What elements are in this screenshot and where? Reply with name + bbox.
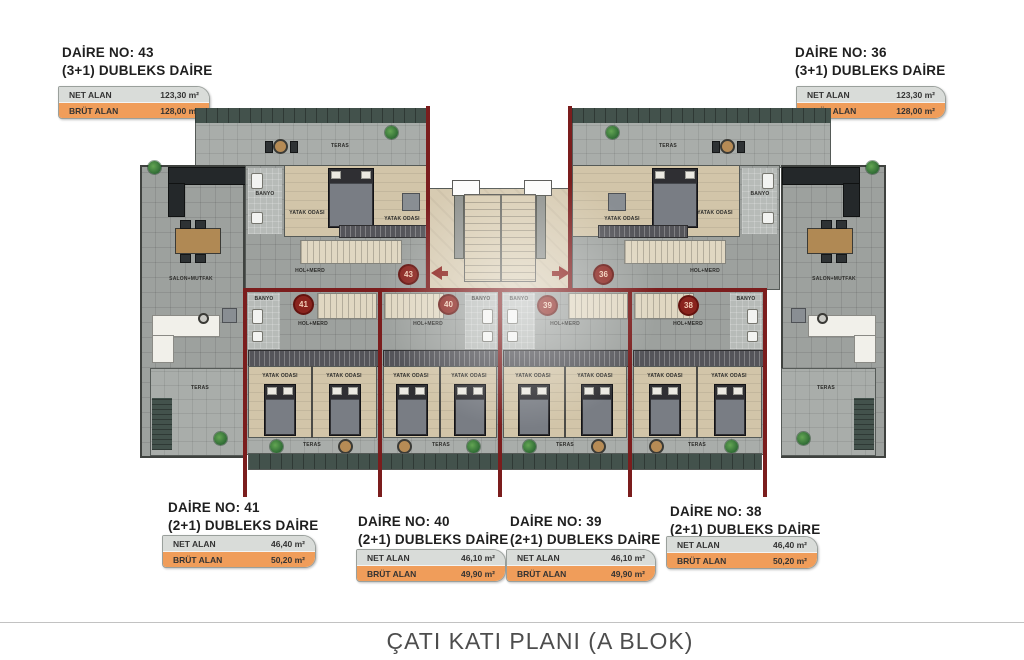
bedroom-divider-wall bbox=[311, 366, 313, 438]
sheet-title: ÇATI KATI PLANI (A BLOK) bbox=[0, 628, 1024, 655]
room-label-bedroom: YATAK ODASI bbox=[380, 217, 424, 223]
room-label-bedroom: YATAK ODASI bbox=[511, 374, 555, 380]
floor-plan-sheet: DAİRE NO: 43 (3+1) DUBLEKS DAİRE NET ALA… bbox=[0, 0, 1024, 660]
terrace-table-icon bbox=[591, 439, 606, 454]
unit-marker-41: 41 bbox=[293, 294, 314, 315]
deck-strip bbox=[854, 398, 874, 450]
axis-line-left bbox=[426, 106, 430, 290]
room-label-living: SALON+MUTFAK bbox=[798, 277, 870, 283]
stair-wall bbox=[536, 195, 546, 259]
net-area-value: 46,10 m² bbox=[611, 553, 645, 563]
net-area-label: NET ALAN bbox=[517, 553, 560, 563]
brut-area-label: BRÜT ALAN bbox=[517, 569, 566, 579]
bedrooms-40: YATAK ODASI YATAK ODASI bbox=[383, 366, 497, 438]
terrace-table-icon bbox=[273, 139, 288, 154]
wardrobe-icon bbox=[633, 350, 764, 367]
sink-icon bbox=[507, 331, 518, 342]
net-area-label: NET ALAN bbox=[807, 90, 850, 100]
plant-icon bbox=[467, 440, 480, 453]
duplex-stairs-39 bbox=[568, 293, 628, 319]
deck-strip bbox=[572, 108, 831, 123]
bathroom-41: BANYO bbox=[248, 293, 280, 349]
armchair-icon bbox=[608, 193, 626, 211]
brut-area-row: BRÜT ALAN 128,00 m² bbox=[59, 103, 209, 118]
chair-icon bbox=[737, 141, 745, 153]
terrace-top-right: TERAS bbox=[572, 108, 831, 168]
bed-icon bbox=[328, 168, 374, 228]
plant-icon bbox=[866, 161, 879, 174]
room-label-bedroom: YATAK ODASI bbox=[694, 211, 736, 217]
unit-marker-41-number: 41 bbox=[299, 300, 308, 309]
deck-strip bbox=[195, 108, 428, 123]
armchair-icon bbox=[791, 308, 806, 323]
bed-icon bbox=[652, 168, 698, 228]
sink-icon bbox=[251, 212, 263, 224]
room-label-bedroom: YATAK ODASI bbox=[286, 211, 328, 217]
room-label-bathroom: BANYO bbox=[503, 297, 535, 303]
room-label-terrace: TERAS bbox=[320, 144, 360, 150]
toilet-icon bbox=[251, 173, 263, 189]
room-label-living: SALON+MUTFAK bbox=[155, 277, 227, 283]
terrace-table-icon bbox=[338, 439, 353, 454]
net-area-row: NET ALAN 46,40 m² bbox=[163, 536, 315, 552]
dining-table-icon bbox=[807, 228, 853, 254]
room-label-terrace: TERAS bbox=[545, 443, 585, 449]
unit-41-subtitle: (2+1) DUBLEKS DAİRE bbox=[168, 517, 318, 535]
unit-40-subtitle: (2+1) DUBLEKS DAİRE bbox=[358, 531, 508, 549]
room-label-bathroom: BANYO bbox=[744, 192, 776, 198]
toilet-icon bbox=[507, 309, 518, 324]
duplex-stairs-40 bbox=[384, 293, 444, 319]
brut-area-label: BRÜT ALAN bbox=[677, 556, 726, 566]
room-label-hall: HOL+MERD bbox=[285, 269, 335, 275]
unit-43-title: DAİRE NO: 43 bbox=[62, 44, 212, 62]
bed-icon bbox=[396, 384, 428, 436]
unit-41-title: DAİRE NO: 41 bbox=[168, 499, 318, 517]
brut-area-label: BRÜT ALAN bbox=[367, 569, 416, 579]
unit-40-heading: DAİRE NO: 40 (2+1) DUBLEKS DAİRE bbox=[358, 513, 508, 548]
room-label-bedroom: YATAK ODASI bbox=[600, 217, 644, 223]
unit-36-plan: YATAK ODASI YATAK ODASI BANYO HOL+MERD 3… bbox=[572, 165, 780, 290]
unit-36-heading: DAİRE NO: 36 (3+1) DUBLEKS DAİRE bbox=[795, 44, 945, 79]
stair-core bbox=[428, 188, 572, 290]
bedroom-divider-wall bbox=[564, 366, 566, 438]
wardrobe-icon bbox=[598, 225, 688, 238]
unit-36-title: DAİRE NO: 36 bbox=[795, 44, 945, 62]
net-area-row: NET ALAN 46,40 m² bbox=[667, 537, 817, 553]
chair-icon bbox=[836, 254, 847, 263]
unit-38-plan: 38 BANYO HOL+MERD YATAK ODASI YATAK ODAS… bbox=[630, 290, 765, 455]
room-label-bedroom: YATAK ODASI bbox=[447, 374, 491, 380]
stair-rail bbox=[500, 195, 502, 281]
bedroom-divider-wall bbox=[696, 366, 698, 438]
axis-line-right bbox=[568, 106, 572, 290]
room-label-bathroom: BANYO bbox=[730, 297, 762, 303]
net-area-label: NET ALAN bbox=[173, 539, 216, 549]
brut-area-value: 50,20 m² bbox=[773, 556, 807, 566]
brut-area-label: BRÜT ALAN bbox=[173, 555, 222, 565]
unit-39-area-table: NET ALAN 46,10 m² BRÜT ALAN 49,90 m² bbox=[506, 549, 656, 582]
unit-divider-v5 bbox=[763, 288, 767, 497]
unit-38-heading: DAİRE NO: 38 (2+1) DUBLEKS DAİRE bbox=[670, 503, 820, 538]
bathroom-36: BANYO bbox=[742, 168, 777, 234]
bed-icon bbox=[518, 384, 550, 436]
staircase-icon bbox=[464, 194, 536, 282]
room-label-bedroom: YATAK ODASI bbox=[573, 374, 617, 380]
sofa-icon bbox=[152, 315, 220, 337]
toilet-icon bbox=[252, 309, 263, 324]
unit-38-title: DAİRE NO: 38 bbox=[670, 503, 820, 521]
unit-36-subtitle: (3+1) DUBLEKS DAİRE bbox=[795, 62, 945, 80]
unit-40-title: DAİRE NO: 40 bbox=[358, 513, 508, 531]
stair-wall bbox=[454, 195, 464, 259]
net-area-label: NET ALAN bbox=[367, 553, 410, 563]
unit-divider-v1 bbox=[243, 288, 247, 497]
unit-marker-36-number: 36 bbox=[599, 270, 608, 279]
room-label-hall: HOL+MERD bbox=[283, 322, 343, 328]
brut-area-value: 49,90 m² bbox=[461, 569, 495, 579]
brut-area-value: 49,90 m² bbox=[611, 569, 645, 579]
unit-39-plan: BANYO 39 HOL+MERD YATAK ODASI YATAK ODAS… bbox=[500, 290, 630, 455]
room-label-bathroom: BANYO bbox=[248, 297, 280, 303]
wing-right-terrace: TERAS bbox=[781, 368, 876, 456]
sink-icon bbox=[482, 331, 493, 342]
unit-40-plan: 40 BANYO HOL+MERD YATAK ODASI YATAK ODAS… bbox=[380, 290, 500, 455]
unit-38-area-table: NET ALAN 46,40 m² BRÜT ALAN 50,20 m² bbox=[666, 536, 818, 569]
terrace-table-icon bbox=[649, 439, 664, 454]
net-area-label: NET ALAN bbox=[677, 540, 720, 550]
title-divider bbox=[0, 622, 1024, 623]
unit-marker-39-number: 39 bbox=[543, 301, 552, 310]
room-label-terrace: TERAS bbox=[421, 443, 461, 449]
chair-icon bbox=[712, 141, 720, 153]
bedroom-area-43: YATAK ODASI YATAK ODASI bbox=[284, 165, 428, 237]
chair-icon bbox=[195, 220, 206, 229]
wardrobe-icon bbox=[339, 225, 429, 238]
sink-icon bbox=[762, 212, 774, 224]
room-label-bathroom: BANYO bbox=[465, 297, 497, 303]
unit-divider-v3 bbox=[498, 288, 502, 497]
toilet-icon bbox=[747, 309, 758, 324]
unit-40-area-table: NET ALAN 46,10 m² BRÜT ALAN 49,90 m² bbox=[356, 549, 506, 582]
bathroom-38: BANYO bbox=[730, 293, 762, 349]
chair-icon bbox=[821, 220, 832, 229]
net-area-value: 46,40 m² bbox=[773, 540, 807, 550]
bedrooms-39: YATAK ODASI YATAK ODASI bbox=[503, 366, 627, 438]
room-label-hall: HOL+MERD bbox=[658, 322, 718, 328]
plant-icon bbox=[385, 126, 398, 139]
room-label-terrace: TERAS bbox=[677, 443, 717, 449]
unit-marker-36: 36 bbox=[593, 264, 614, 285]
bed-icon bbox=[649, 384, 681, 436]
chair-icon bbox=[290, 141, 298, 153]
wardrobe-icon bbox=[503, 350, 629, 367]
chair-icon bbox=[265, 141, 273, 153]
armchair-icon bbox=[402, 193, 420, 211]
chair-icon bbox=[821, 254, 832, 263]
room-label-hall: HOL+MERD bbox=[680, 269, 730, 275]
unit-marker-40-number: 40 bbox=[444, 300, 453, 309]
plant-icon bbox=[725, 440, 738, 453]
unit-43-area-table: NET ALAN 123,30 m² BRÜT ALAN 128,00 m² bbox=[58, 86, 210, 119]
plant-icon bbox=[797, 432, 810, 445]
bed-icon bbox=[714, 384, 746, 436]
bedroom-divider-wall bbox=[439, 366, 441, 438]
chair-icon bbox=[195, 254, 206, 263]
unit-39-title: DAİRE NO: 39 bbox=[510, 513, 660, 531]
room-label-bedroom: YATAK ODASI bbox=[322, 374, 366, 380]
brut-area-row: BRÜT ALAN 49,90 m² bbox=[507, 566, 655, 581]
brut-area-value: 128,00 m² bbox=[896, 106, 935, 116]
bathroom-39: BANYO bbox=[503, 293, 535, 349]
terrace-table-icon bbox=[397, 439, 412, 454]
bathroom-40: BANYO bbox=[465, 293, 497, 349]
unit-divider-horizontal bbox=[243, 288, 767, 292]
chair-icon bbox=[836, 220, 847, 229]
unit-41-heading: DAİRE NO: 41 (2+1) DUBLEKS DAİRE bbox=[168, 499, 318, 534]
net-area-value: 123,30 m² bbox=[896, 90, 935, 100]
unit-39-heading: DAİRE NO: 39 (2+1) DUBLEKS DAİRE bbox=[510, 513, 660, 548]
unit-marker-40: 40 bbox=[438, 294, 459, 315]
unit-divider-v4 bbox=[628, 288, 632, 497]
room-label-terrace: TERAS bbox=[806, 386, 846, 392]
net-area-row: NET ALAN 46,10 m² bbox=[357, 550, 505, 566]
brut-area-row: BRÜT ALAN 50,20 m² bbox=[667, 553, 817, 568]
toilet-icon bbox=[762, 173, 774, 189]
unit-marker-39: 39 bbox=[537, 295, 558, 316]
net-area-label: NET ALAN bbox=[69, 90, 112, 100]
brut-area-row: BRÜT ALAN 49,90 m² bbox=[357, 566, 505, 581]
net-area-value: 46,40 m² bbox=[271, 539, 305, 549]
unit-43-heading: DAİRE NO: 43 (3+1) DUBLEKS DAİRE bbox=[62, 44, 212, 79]
plant-icon bbox=[214, 432, 227, 445]
room-label-terrace: TERAS bbox=[292, 443, 332, 449]
toilet-icon bbox=[482, 309, 493, 324]
brut-area-row: BRÜT ALAN 50,20 m² bbox=[163, 552, 315, 567]
unit-marker-38-number: 38 bbox=[684, 301, 693, 310]
dining-table-icon bbox=[175, 228, 221, 254]
terrace-top-left: TERAS bbox=[195, 108, 428, 168]
unit-41-plan: BANYO 41 HOL+MERD YATAK ODASI YATAK ODAS… bbox=[245, 290, 380, 455]
bed-icon bbox=[454, 384, 486, 436]
unit-41-area-table: NET ALAN 46,40 m² BRÜT ALAN 50,20 m² bbox=[162, 535, 316, 568]
unit-43-subtitle: (3+1) DUBLEKS DAİRE bbox=[62, 62, 212, 80]
plant-icon bbox=[606, 126, 619, 139]
bedroom-area-36: YATAK ODASI YATAK ODASI bbox=[572, 165, 740, 237]
duplex-stairs-41 bbox=[317, 293, 377, 319]
chair-icon bbox=[180, 220, 191, 229]
brut-area-label: BRÜT ALAN bbox=[69, 106, 118, 116]
kitchen-counter-icon bbox=[843, 183, 860, 217]
bed-icon bbox=[329, 384, 361, 436]
armchair-icon bbox=[222, 308, 237, 323]
bed-icon bbox=[581, 384, 613, 436]
sofa-icon bbox=[854, 335, 876, 363]
unit-divider-v2 bbox=[378, 288, 382, 497]
room-label-bedroom: YATAK ODASI bbox=[389, 374, 433, 380]
deck-strip bbox=[152, 398, 172, 450]
bed-icon bbox=[264, 384, 296, 436]
deck-strip-bottom bbox=[248, 453, 762, 470]
room-label-bedroom: YATAK ODASI bbox=[258, 374, 302, 380]
room-label-hall: HOL+MERD bbox=[535, 322, 595, 328]
net-area-row: NET ALAN 46,10 m² bbox=[507, 550, 655, 566]
wardrobe-icon bbox=[248, 350, 379, 367]
net-area-row: NET ALAN 123,30 m² bbox=[59, 87, 209, 103]
room-label-terrace: TERAS bbox=[648, 144, 688, 150]
wardrobe-icon bbox=[383, 350, 499, 367]
duplex-stairs-43 bbox=[300, 240, 402, 264]
wing-left-terrace: TERAS bbox=[150, 368, 245, 456]
unit-43-plan: BANYO YATAK ODASI YATAK ODASI HOL+MERD 4… bbox=[245, 165, 428, 290]
unit-marker-43-number: 43 bbox=[404, 270, 413, 279]
coffee-table-icon bbox=[817, 313, 828, 324]
room-label-terrace: TERAS bbox=[180, 386, 220, 392]
sink-icon bbox=[747, 331, 758, 342]
duplex-stairs-36 bbox=[624, 240, 726, 264]
bedrooms-38: YATAK ODASI YATAK ODASI bbox=[633, 366, 762, 438]
bathroom-43: BANYO bbox=[248, 168, 282, 234]
brut-area-value: 128,00 m² bbox=[160, 106, 199, 116]
sink-icon bbox=[252, 331, 263, 342]
net-area-value: 123,30 m² bbox=[160, 90, 199, 100]
room-label-bedroom: YATAK ODASI bbox=[707, 374, 751, 380]
plant-icon bbox=[523, 440, 536, 453]
unit-39-subtitle: (2+1) DUBLEKS DAİRE bbox=[510, 531, 660, 549]
sofa-icon bbox=[152, 335, 174, 363]
brut-area-value: 50,20 m² bbox=[271, 555, 305, 565]
kitchen-counter-icon bbox=[168, 183, 185, 217]
room-label-bedroom: YATAK ODASI bbox=[643, 374, 687, 380]
terrace-table-icon bbox=[720, 139, 735, 154]
net-area-value: 46,10 m² bbox=[461, 553, 495, 563]
plant-icon bbox=[148, 161, 161, 174]
room-label-hall: HOL+MERD bbox=[398, 322, 458, 328]
unit-marker-38: 38 bbox=[678, 295, 699, 316]
net-area-row: NET ALAN 123,30 m² bbox=[797, 87, 945, 103]
room-label-bathroom: BANYO bbox=[249, 192, 281, 198]
coffee-table-icon bbox=[198, 313, 209, 324]
unit-marker-43: 43 bbox=[398, 264, 419, 285]
bedrooms-41: YATAK ODASI YATAK ODASI bbox=[248, 366, 377, 438]
chair-icon bbox=[180, 254, 191, 263]
plant-icon bbox=[270, 440, 283, 453]
